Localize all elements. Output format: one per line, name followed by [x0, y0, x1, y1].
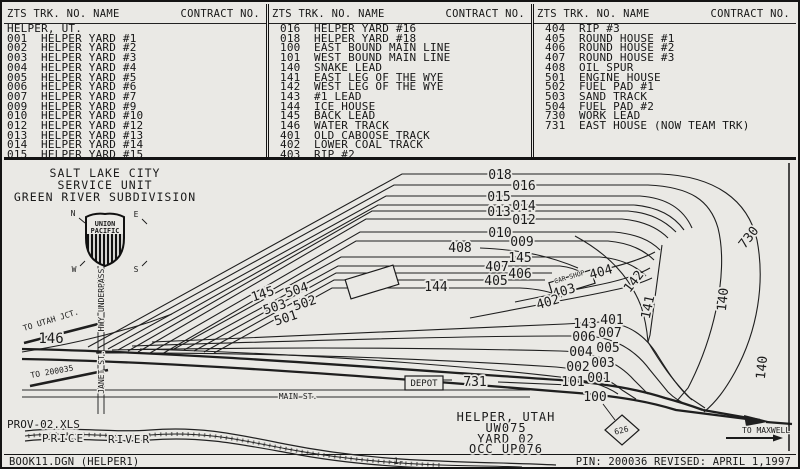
label-track-402: 402 — [535, 292, 562, 313]
union-pacific-logo: UNION PACIFIC — [86, 214, 124, 268]
depot-label: DEPOT — [410, 379, 438, 389]
label-track-405: 405 — [484, 274, 507, 289]
label-track-408: 408 — [448, 241, 471, 256]
label-track-014: 014 — [512, 199, 536, 214]
janet-st-label: JANET ST. — [97, 350, 106, 393]
label-track-407: 407 — [485, 260, 508, 275]
label-track-146: 146 — [38, 331, 63, 347]
label-track-731: 731 — [463, 375, 486, 390]
annotations: HWY UNDERPASS JANET ST. MAIN ST. TO UTAH… — [7, 269, 790, 446]
title-line-3: GREEN RIVER SUBDIVISION — [14, 190, 196, 204]
river-label: RIVER — [108, 433, 151, 446]
yard-schematic: N E W S UNION PACIFIC SALT LAKE CITY SER… — [0, 0, 800, 469]
location-occ: OCC UP076 — [469, 442, 543, 456]
title-block: SALT LAKE CITY SERVICE UNIT GREEN RIVER … — [14, 166, 196, 204]
compass-n: N — [71, 209, 76, 218]
compass-e: E — [134, 210, 139, 219]
to-utah-jct-label: TO UTAH JCT. — [22, 307, 80, 333]
to-maxwell-arrow — [726, 435, 783, 442]
track-end-arrow — [744, 415, 770, 426]
label-track-001: 001 — [587, 371, 610, 386]
label-track-144: 144 — [424, 280, 448, 295]
to-maxwell-label: TO MAXWELL — [742, 426, 790, 435]
label-track-009: 009 — [510, 235, 533, 250]
label-track-141: 141 — [639, 294, 659, 320]
label-track-007: 007 — [598, 326, 621, 341]
prov-xls-label: PROV-02.XLS — [7, 418, 80, 431]
label-track-004: 004 — [569, 345, 593, 360]
label-track-006: 006 — [572, 330, 595, 345]
compass-s: S — [134, 265, 139, 274]
label-track-140-south: 140 — [754, 355, 771, 380]
ice-house-building — [345, 265, 399, 299]
price-label: PRICE — [42, 432, 85, 445]
label-track-010: 010 — [488, 226, 511, 241]
label-track-015: 015 — [487, 190, 510, 205]
label-track-016: 016 — [512, 179, 535, 194]
label-track-012: 012 — [512, 213, 535, 228]
label-track-404: 404 — [588, 262, 615, 283]
label-track-142: 142 — [621, 268, 647, 296]
logo-pacific: PACIFIC — [91, 227, 120, 235]
hwy-underpass-label: HWY UNDERPASS — [97, 269, 106, 332]
label-track-018: 018 — [488, 168, 511, 183]
track-141-east-leg — [648, 245, 662, 342]
east-ladder — [648, 342, 705, 408]
main-st-label: MAIN ST. — [279, 392, 318, 401]
label-track-101: 101 — [561, 375, 584, 390]
label-track-013: 013 — [487, 205, 510, 220]
label-track-140: 140 — [715, 287, 732, 312]
label-track-406: 406 — [508, 267, 531, 282]
label-track-005: 005 — [596, 341, 619, 356]
compass-w: W — [72, 265, 77, 274]
label-track-003: 003 — [591, 356, 614, 371]
location-block: HELPER, UTAH UW075 YARD 02 OCC UP076 — [457, 410, 556, 456]
label-track-100: 100 — [583, 390, 606, 405]
label-track-145-east: 145 — [508, 251, 531, 266]
label-track-002: 002 — [566, 360, 589, 375]
